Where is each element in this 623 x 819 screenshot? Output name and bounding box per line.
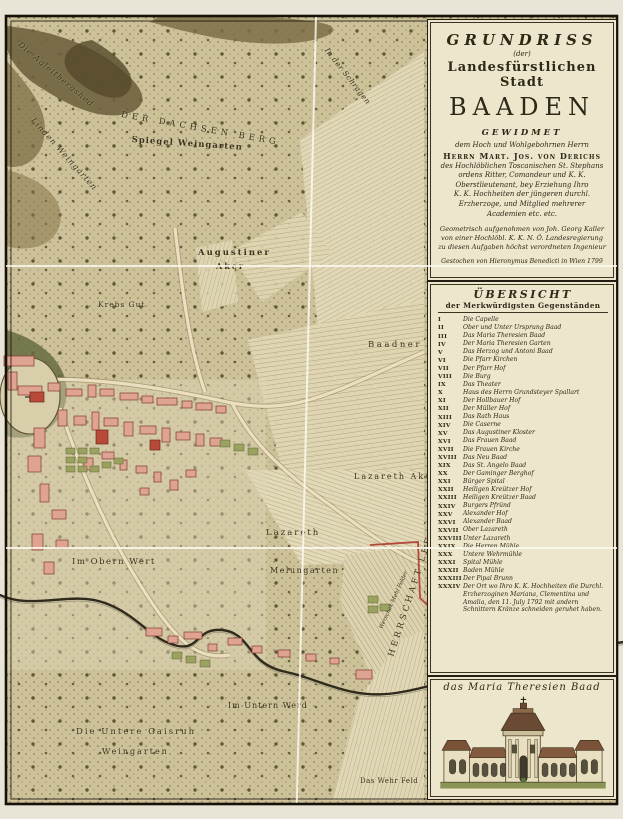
legend-item-label: Das Theater: [463, 381, 608, 389]
legend-item-label: Der Pipal Brunn: [463, 575, 608, 583]
legend-item-label: Das St. Angelo Baad: [463, 462, 608, 470]
legend-item-numeral: XXVIII: [438, 535, 463, 543]
legend-item-label: Der Müller Hof: [463, 405, 608, 413]
legend-item-numeral: VII: [438, 365, 463, 373]
legend-item: XIII Das Rath Haus: [438, 413, 608, 421]
legend-item-label: Der Maria Theresien Garten: [463, 340, 608, 348]
legend-item: XX Der Gaminger Berghof: [438, 470, 608, 478]
legend-item-numeral: V: [438, 348, 463, 356]
legend-item-label: Ober und Unter Ursprung Baad: [463, 324, 608, 332]
legend-title: ÜBERSICHT: [438, 288, 608, 301]
map-label-krebs-gut: Krebs Gut: [98, 300, 146, 309]
legend-item-numeral: XXIV: [438, 502, 463, 510]
legend-item: I Die Capelle: [438, 316, 608, 324]
legend-item: XXIV Burgers Pfründ: [438, 502, 608, 510]
legend-item: XXXIV Der Ort wo Ihro K. K. Hochheiten d…: [438, 583, 608, 614]
title-baaden: BAADEN: [434, 93, 610, 121]
dedication-line: Oberstlieutenant, bey Erziehung Ihro: [434, 181, 610, 191]
title-cartouche: GRUNDRISS (der) Landesfürstlichen Stadt …: [427, 19, 617, 281]
title-der: (der): [434, 50, 610, 58]
legend-panel: ÜBERSICHT der Merkwürdigsten Gegenstände…: [427, 281, 617, 676]
legend-subtitle: der Merkwürdigsten Gegenständen: [438, 301, 608, 313]
legend-item-label: Das Herzog und Antoni Baad: [463, 348, 608, 356]
dedication-line: des Hochlöblichen Toscanischen St. Steph…: [434, 162, 610, 172]
legend-item-numeral: XIX: [438, 462, 463, 470]
legend-item-numeral: XVI: [438, 437, 463, 445]
legend-item: XII Der Müller Hof: [438, 405, 608, 413]
legend-item-label: Der Gaminger Berghof: [463, 470, 608, 478]
legend-item: X Haus des Herrn Grundsteyer Spallart: [438, 389, 608, 397]
legend-item-label: Die Caserne: [463, 421, 608, 429]
surveyor-line: von einer Hochlöbl. K. K. N. Ö. Landesre…: [434, 234, 610, 243]
legend-item-label: Heiligen Kreützer Baad: [463, 494, 608, 502]
legend-item-numeral: IX: [438, 381, 463, 389]
legend-item-label: Die Pfarr Kirchen: [463, 356, 608, 364]
legend-item-numeral: XXI: [438, 478, 463, 486]
legend-item-label: Der Ort wo Ihro K. K. Hochheiten die Dur…: [463, 583, 608, 614]
legend-item: XXVIII Unter Lazareth: [438, 535, 608, 543]
legend-item-numeral: XXV: [438, 510, 463, 518]
dedication-line: K. K. Hochheiten der jüngeren durchl.: [434, 190, 610, 200]
legend-item-label: Der Hollbauer Hof: [463, 397, 608, 405]
legend-item-label: Die Burg: [463, 373, 608, 381]
dedication-line: dem Hoch und Wohlgebohrnen Herrn: [434, 141, 610, 151]
legend-item-numeral: IV: [438, 340, 463, 348]
legend-item-numeral: XVII: [438, 446, 463, 454]
legend-item: XXVII Ober Lazareth: [438, 526, 608, 534]
legend-item-label: Die Capelle: [463, 316, 608, 324]
map-label-lazareth-aker: Lazareth Aker: [354, 472, 438, 481]
legend-item: XIX Das St. Angelo Baad: [438, 462, 608, 470]
engraver-line: Gestochen von Hieronymus Benedicti in Wi…: [434, 257, 610, 267]
legend-item-label: Baden Mühle: [463, 567, 608, 575]
map-label-melungarten: Melungarten: [270, 566, 339, 575]
legend-item-numeral: XII: [438, 405, 463, 413]
legend-item-numeral: XXII: [438, 486, 463, 494]
maria-theresien-baad-illustration: [432, 694, 614, 794]
legend-item-label: Burgers Pfründ: [463, 502, 608, 510]
legend-item-numeral: XIV: [438, 421, 463, 429]
legend-item-label: Das Frauen Baad: [463, 437, 608, 445]
legend-item: XXIII Heiligen Kreützer Baad: [438, 494, 608, 502]
legend-item-label: Die Frauen Kirche: [463, 446, 608, 454]
legend-item: XXI Bürger Spital: [438, 478, 608, 486]
legend-item: XIV Die Caserne: [438, 421, 608, 429]
legend-item-numeral: I: [438, 316, 463, 324]
legend-item-label: Das Augustiner Kloster: [463, 429, 608, 437]
legend-item-label: Bürger Spital: [463, 478, 608, 486]
legend-item: IV Der Maria Theresien Garten: [438, 340, 608, 348]
map-label-untere-gaisruh: Die Untere Gaisruh: [76, 727, 196, 737]
legend-item: III Das Maria Theresien Baad: [438, 332, 608, 340]
map-label-im-obern-wert: Im Obern Wert: [72, 557, 156, 567]
legend-item-label: Haus des Herrn Grundsteyer Spallart: [463, 389, 608, 397]
legend-item-numeral: XXX: [438, 551, 463, 559]
legend-item: XVI Das Frauen Baad: [438, 437, 608, 445]
legend-item: XXX Untere Wehrmühle: [438, 551, 608, 559]
legend-item: VIII Die Burg: [438, 373, 608, 381]
map-label-augustiner: Augustiner: [198, 248, 271, 258]
vignette-panel: das Maria Theresien Baad: [427, 676, 617, 800]
legend-item-label: Unter Lazareth: [463, 535, 608, 543]
legend-item-label: Der Pfarr Hof: [463, 365, 608, 373]
dedication-line: ordens Ritter, Comandeur und K. K.: [434, 171, 610, 181]
legend-item-label: Das Rath Haus: [463, 413, 608, 421]
surveyor-line: Geometrisch aufgenohmen von Joh. Georg K…: [434, 225, 610, 234]
legend-item-numeral: XXIII: [438, 494, 463, 502]
legend-item: XXXIII Der Pipal Brunn: [438, 575, 608, 583]
legend-item-label: Heiligen Kreützer Hof: [463, 486, 608, 494]
map-label-augustiner-aker: Aker: [216, 261, 245, 271]
legend-item: XXIX Die Herren Mühle: [438, 543, 608, 551]
legend-item-label: Untere Wehrmühle: [463, 551, 608, 559]
map-label-weingarten: Weingarten: [102, 747, 169, 756]
legend-item-label: Alexander Hof: [463, 510, 608, 518]
legend-item: XXXI Spital Mühle: [438, 559, 608, 567]
legend-item: II Ober und Unter Ursprung Baad: [438, 324, 608, 332]
legend-item: XVII Die Frauen Kirche: [438, 446, 608, 454]
legend-item-label: Spital Mühle: [463, 559, 608, 567]
title-gewidmet: GEWIDMET: [434, 128, 610, 138]
legend-item-numeral: XXVII: [438, 526, 463, 534]
map-title: GRUNDRISS: [434, 31, 610, 49]
map-label-wehr-feld: Das Wehr Feld: [360, 777, 418, 785]
legend-item-numeral: XXVI: [438, 518, 463, 526]
legend-item: XXII Heiligen Kreützer Hof: [438, 486, 608, 494]
legend-item-numeral: XXXI: [438, 559, 463, 567]
legend-item: XVIII Das Neu Baad: [438, 454, 608, 462]
legend-item-label: Das Maria Theresien Baad: [463, 332, 608, 340]
legend-item-numeral: XV: [438, 429, 463, 437]
legend-item-numeral: XI: [438, 397, 463, 405]
legend-item-numeral: XXIX: [438, 543, 463, 551]
legend-item-numeral: II: [438, 324, 463, 332]
title-stadt: Landesfürstlichen Stadt: [434, 60, 610, 90]
legend-item-numeral: X: [438, 389, 463, 397]
legend-item-numeral: XXXIII: [438, 575, 463, 583]
legend-item-label: Das Neu Baad: [463, 454, 608, 462]
legend-item: XXV Alexander Hof: [438, 510, 608, 518]
legend-item-numeral: VIII: [438, 373, 463, 381]
legend-item-numeral: XXXII: [438, 567, 463, 575]
legend-item: XV Das Augustiner Kloster: [438, 429, 608, 437]
legend-item-numeral: III: [438, 332, 463, 340]
scanned-map-sheet: Die Agleitbergshed Linden Weingarten DER…: [0, 0, 623, 819]
dedication-name: Herrn Mart. Jos. von Derichs: [434, 151, 610, 162]
vignette-caption: das Maria Theresien Baad: [432, 682, 612, 693]
legend-item-numeral: XVIII: [438, 454, 463, 462]
dedication-line: Academien etc. etc.: [434, 210, 610, 220]
legend-item-numeral: XX: [438, 470, 463, 478]
legend-item: XXVI Alexander Baad: [438, 518, 608, 526]
legend-item: V Das Herzog und Antoni Baad: [438, 348, 608, 356]
map-label-im-untern-werd: Im Untern Werd: [228, 701, 308, 710]
legend-list: I Die Capelle II Ober und Unter Ursprung…: [438, 316, 608, 614]
legend-item-numeral: VI: [438, 356, 463, 364]
legend-item-label: Ober Lazareth: [463, 526, 608, 534]
map-label-lazareth: Lazareth: [266, 528, 320, 538]
legend-item: XI Der Hollbauer Hof: [438, 397, 608, 405]
legend-item: XXXII Baden Mühle: [438, 567, 608, 575]
legend-item: VII Der Pfarr Hof: [438, 365, 608, 373]
surveyor-line: zu diesen Aufgaben höchst verordneten In…: [434, 243, 610, 252]
dedication-line: Erzherzoge, und Mitglied mehrerer: [434, 200, 610, 210]
legend-item-label: Die Herren Mühle: [463, 543, 608, 551]
legend-item-label: Alexander Baad: [463, 518, 608, 526]
legend-item: IX Das Theater: [438, 381, 608, 389]
legend-item: VI Die Pfarr Kirchen: [438, 356, 608, 364]
legend-item-numeral: XXXIV: [438, 583, 463, 591]
legend-item-numeral: XIII: [438, 413, 463, 421]
